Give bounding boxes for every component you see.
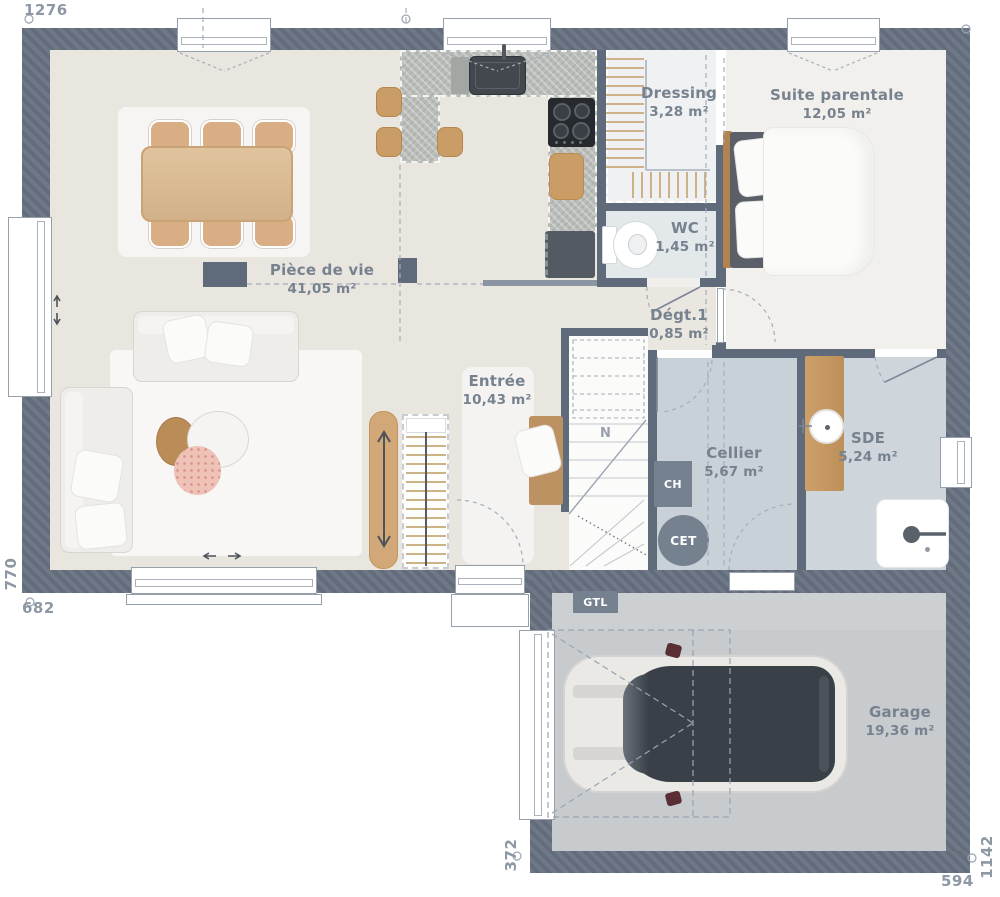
window-suite-top: [787, 18, 880, 52]
window-living-top: [177, 18, 271, 52]
dimension-bottom-left: 682: [22, 599, 55, 617]
dressing-hangers-bottom: [632, 172, 712, 198]
partition-wc-bottom-b: [700, 278, 726, 287]
car-hood-stripe: [573, 685, 629, 698]
partition-degt-post: [712, 345, 726, 358]
window-living-bottom-sill: [126, 594, 322, 605]
room-label-piece-de-vie: Pièce de vie41,05 m²: [247, 260, 397, 298]
window-kitchen-top: [443, 18, 551, 52]
kitchen-sink: [469, 56, 526, 95]
entree-bench: [369, 411, 398, 569]
front-door: [455, 565, 525, 594]
room-label-garage: Garage19,36 m²: [845, 702, 955, 740]
coffee-table-terrazzo: [174, 446, 221, 495]
wardrobe-shelf: [406, 418, 446, 433]
front-door-porch: [451, 594, 529, 627]
pier-living-b: [398, 258, 417, 283]
kitchen-island-leg: [400, 95, 440, 163]
stairs-north-mark: N: [600, 426, 611, 441]
dimension-left: 770: [2, 552, 20, 596]
partition-dressing-wc: [597, 203, 726, 211]
shower-dot: [925, 547, 930, 552]
half-wall-kitchen: [483, 280, 597, 286]
room-label-cellier: Cellier5,67 m²: [679, 443, 789, 481]
dimension-garage-bottom: 594: [941, 872, 974, 890]
room-label-degagement: Dégt.10,85 m²: [634, 305, 724, 343]
room-label-sde: SDE5,24 m²: [813, 428, 923, 466]
faucet-icon: [502, 44, 506, 60]
sofa-cushion: [69, 448, 125, 504]
bar-stool: [437, 127, 463, 157]
dimension-garage-right: 1142: [978, 831, 996, 883]
dimension-top: 1276: [24, 1, 68, 19]
wall-garage-bottom: [530, 851, 970, 873]
sink-drainboard: [451, 57, 469, 94]
water-heater-circle: CET: [658, 515, 709, 566]
car: [563, 655, 848, 793]
window-sde-right: [940, 437, 972, 488]
fridge: [545, 231, 595, 278]
car-hood-stripe: [573, 747, 629, 760]
room-label-entree: Entrée10,43 m²: [452, 371, 542, 409]
pier-living-a: [203, 262, 247, 287]
door-cellier-garage: [729, 572, 795, 591]
shower-drain: [903, 526, 920, 543]
bar-stool: [376, 127, 402, 157]
partition-sde-post: [937, 349, 946, 358]
floor-threshold-wc: [647, 278, 700, 287]
car-cabin: [623, 666, 835, 782]
window-living-bottom: [131, 567, 317, 594]
bed-duvet: [763, 127, 875, 276]
room-label-suite-parentale: Suite parentale12,05 m²: [762, 85, 912, 123]
bar-stool: [376, 87, 402, 117]
floor-plan: CH CET GTL: [0, 0, 1000, 897]
gtl-box: GTL: [573, 591, 618, 613]
sofa-cushion: [74, 502, 128, 551]
garage-door: [519, 630, 555, 820]
window-living-left: [8, 217, 52, 397]
dimension-garage-left: 372: [502, 833, 520, 877]
sofa-cushion: [203, 320, 254, 368]
cooktop: [548, 98, 595, 147]
partition-wc-bottom-a: [597, 278, 647, 287]
partition-cellier-left: [648, 350, 657, 570]
dining-table: [141, 146, 293, 222]
floor-stairs: [569, 336, 648, 570]
cutting-board: [549, 153, 584, 200]
room-label-dressing: Dressing3,28 m²: [629, 83, 729, 121]
wardrobe-hangers: [406, 436, 446, 564]
room-label-wc: WC1,45 m²: [640, 218, 730, 256]
